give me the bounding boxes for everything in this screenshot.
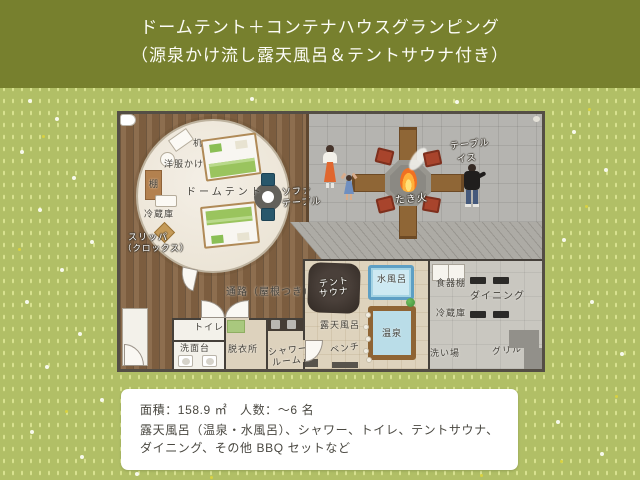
stone xyxy=(363,348,369,354)
title-line-1: ドームテント＋コンテナハウスグランピング xyxy=(0,14,640,42)
dressing-mat xyxy=(227,320,245,333)
grill-block-2 xyxy=(524,348,542,369)
dining-chair-3 xyxy=(470,311,486,318)
label-passage: 通路（屋根つき） xyxy=(226,287,314,299)
toilet-fixture xyxy=(120,114,136,126)
wall xyxy=(303,259,305,340)
door-arc-left xyxy=(201,300,225,318)
label-desk: 机 xyxy=(193,138,203,148)
label-fridge-dome: 冷蔵庫 xyxy=(144,209,174,219)
sink-1 xyxy=(178,355,193,367)
wood-edge xyxy=(306,114,309,222)
label-onsen: 温泉 xyxy=(382,328,402,338)
label-slippers-1: スリッパ xyxy=(128,232,168,242)
label-dressing: 脱衣所 xyxy=(228,344,258,354)
label-fridge-dining: 冷蔵庫 xyxy=(436,308,466,318)
info-line-2: 露天風呂（温泉・水風呂）、シャワー、トイレ、テントサウナ、 xyxy=(140,421,518,439)
person-man xyxy=(463,164,483,212)
label-rotenburo: 露天風呂 xyxy=(320,320,360,330)
label-toilet: トイレ xyxy=(194,322,224,332)
dome-door-arc xyxy=(178,267,198,292)
wall xyxy=(172,318,201,320)
stone xyxy=(365,312,371,318)
wall xyxy=(172,318,174,369)
grill-block-1 xyxy=(509,330,539,348)
person-woman xyxy=(323,145,337,191)
stone xyxy=(366,357,372,363)
dining-chair-1 xyxy=(470,277,486,284)
sofa-chair-bottom xyxy=(261,208,275,221)
label-shelf: 棚 xyxy=(149,179,159,189)
label-cold-bath: 水風呂 xyxy=(377,274,407,284)
label-dome-tent: ドームテント xyxy=(186,187,264,199)
label-chair: イス xyxy=(457,152,478,164)
green-ball xyxy=(406,298,415,307)
stone xyxy=(365,336,371,342)
title-banner: ドームテント＋コンテナハウスグランピング （源泉かけ流し露天風呂＆テントサウナ付… xyxy=(0,0,640,88)
person-child xyxy=(344,173,354,203)
fire-icon xyxy=(400,168,417,192)
wall xyxy=(266,318,268,369)
wall xyxy=(303,362,305,369)
wall xyxy=(303,259,542,261)
wall xyxy=(224,318,226,369)
label-washstand: 洗面台 xyxy=(180,343,210,353)
fridge-dome xyxy=(155,195,177,207)
info-line-3: ダイニング、その他 BBQ セットなど xyxy=(140,439,518,457)
wall xyxy=(172,340,224,342)
bed-lower xyxy=(200,201,260,249)
page: { "title": { "line1": "ドームテント＋コンテナハウスグラン… xyxy=(0,0,640,480)
bench-2 xyxy=(332,362,358,368)
sofa-chair-top xyxy=(261,173,275,186)
label-dining: ダイニング xyxy=(470,291,525,303)
title-line-2: （源泉かけ流し露天風呂＆テントサウナ付き） xyxy=(0,42,640,70)
label-cupboard: 食器棚 xyxy=(436,278,466,288)
info-line-1: 面積：158.9 ㎡ 人数：～6 名 xyxy=(140,401,518,419)
wall xyxy=(249,318,303,320)
stone xyxy=(363,324,369,330)
dining-chair-2 xyxy=(493,277,509,284)
floor-plan: 机 洋服かけ 棚 冷蔵庫 スリッパ （クロックス） ドームテント ソファ テーブ… xyxy=(117,111,545,372)
wall xyxy=(428,259,430,369)
bed-upper xyxy=(200,132,261,181)
dining-chair-4 xyxy=(493,311,509,318)
door-arc-right xyxy=(225,300,249,318)
sink-2 xyxy=(202,355,217,367)
info-box: 面積：158.9 ㎡ 人数：～6 名 露天風呂（温泉・水風呂）、シャワー、トイレ… xyxy=(121,389,518,470)
label-sink-area: 洗い場 xyxy=(430,348,460,358)
label-hanger: 洋服かけ xyxy=(164,159,204,169)
label-slippers-2: （クロックス） xyxy=(123,244,189,254)
